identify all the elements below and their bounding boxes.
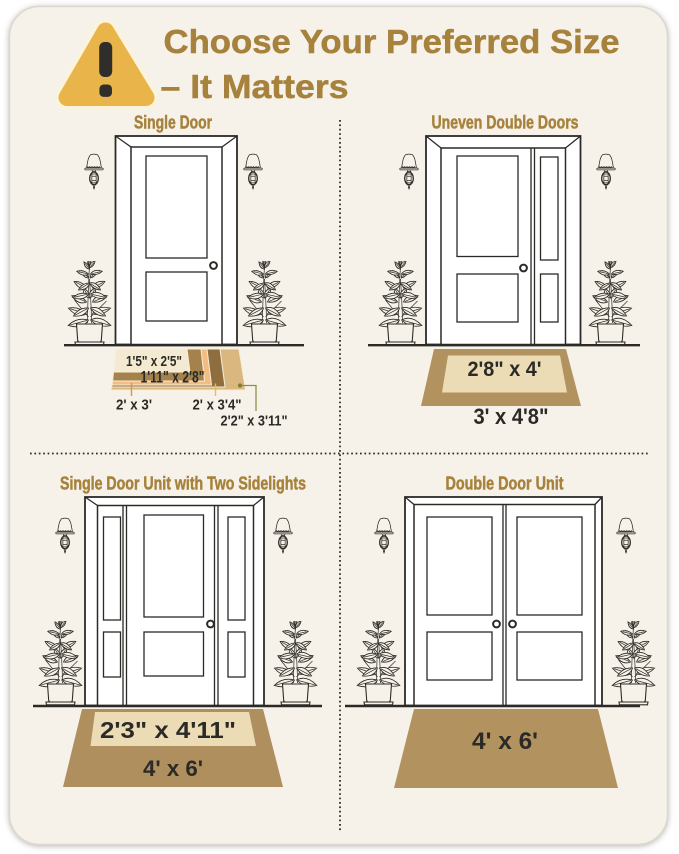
svg-text:1'11" x 2'8": 1'11" x 2'8" xyxy=(141,369,205,387)
svg-text:Single Door: Single Door xyxy=(134,112,212,133)
svg-text:4' x 6': 4' x 6' xyxy=(472,728,538,755)
svg-text:4' x 6': 4' x 6' xyxy=(143,756,203,781)
svg-text:Single Door Unit with Two Side: Single Door Unit with Two Sidelights xyxy=(60,473,306,494)
svg-text:3' x 4'8": 3' x 4'8" xyxy=(474,404,549,429)
svg-text:2'2" x 3'11": 2'2" x 3'11" xyxy=(221,414,288,430)
svg-text:Double Door Unit: Double Door Unit xyxy=(446,473,564,494)
svg-text:2'3" x 4'11": 2'3" x 4'11" xyxy=(100,717,236,743)
svg-text:2'8" x 4': 2'8" x 4' xyxy=(468,357,542,381)
svg-text:2' x 3'4": 2' x 3'4" xyxy=(193,398,242,414)
svg-text:Uneven Double Doors: Uneven Double Doors xyxy=(432,112,579,133)
svg-text:2' x 3': 2' x 3' xyxy=(116,398,152,414)
svg-text:Choose Your Preferred Size: Choose Your Preferred Size xyxy=(164,24,620,61)
svg-text:– It Matters: – It Matters xyxy=(161,69,349,106)
